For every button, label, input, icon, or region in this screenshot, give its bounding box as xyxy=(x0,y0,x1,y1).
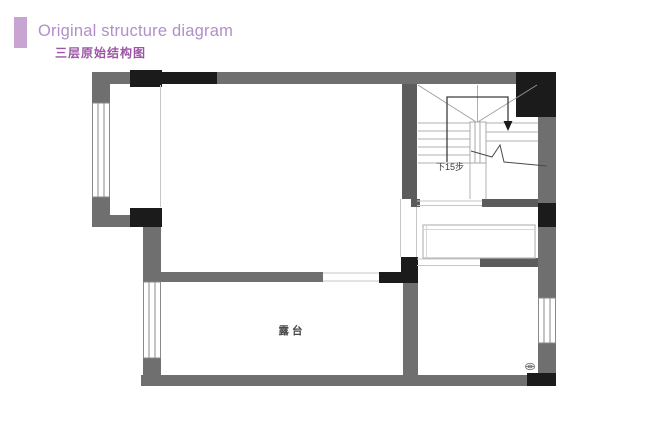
wall-terrace-left-corner xyxy=(143,358,161,376)
wall-room-terrace xyxy=(158,272,323,282)
wall-stairwell-bottom xyxy=(482,199,538,207)
page-title: Original structure diagram xyxy=(38,22,233,41)
column-right-mid xyxy=(538,203,556,227)
floor-drain-icon xyxy=(526,363,535,369)
wall-left-upper xyxy=(92,72,110,103)
window-icon xyxy=(144,282,161,358)
wall-step-connector xyxy=(110,215,131,227)
wall-left-below-window xyxy=(92,197,110,227)
header-accent-bar xyxy=(14,17,27,48)
page-subtitle: 三层原始结构图 xyxy=(55,44,146,61)
column-bottom-right-corner xyxy=(527,373,556,386)
column-center-arm xyxy=(379,272,401,283)
wall-bottom xyxy=(141,375,556,386)
column-top-strip xyxy=(162,72,217,84)
stair-direction-label: 下15步 xyxy=(436,162,464,172)
column-center xyxy=(401,257,418,283)
floor-plan-page: 下15步 露台 Original structure diagram 三层原始结… xyxy=(0,0,650,433)
window-icon xyxy=(539,298,556,343)
closet-box xyxy=(423,225,535,258)
terrace-label: 露台 xyxy=(279,324,306,337)
column-top-left xyxy=(130,70,162,87)
wall-corridor-bottom xyxy=(480,258,538,267)
column-left-mid xyxy=(130,208,162,227)
wall-stairwell-left xyxy=(402,84,417,199)
header: Original structure diagram 三层原始结构图 xyxy=(0,0,650,66)
wall-terrace-room-divider xyxy=(403,283,418,375)
window-icon xyxy=(93,103,110,197)
stair-divider xyxy=(470,122,486,163)
